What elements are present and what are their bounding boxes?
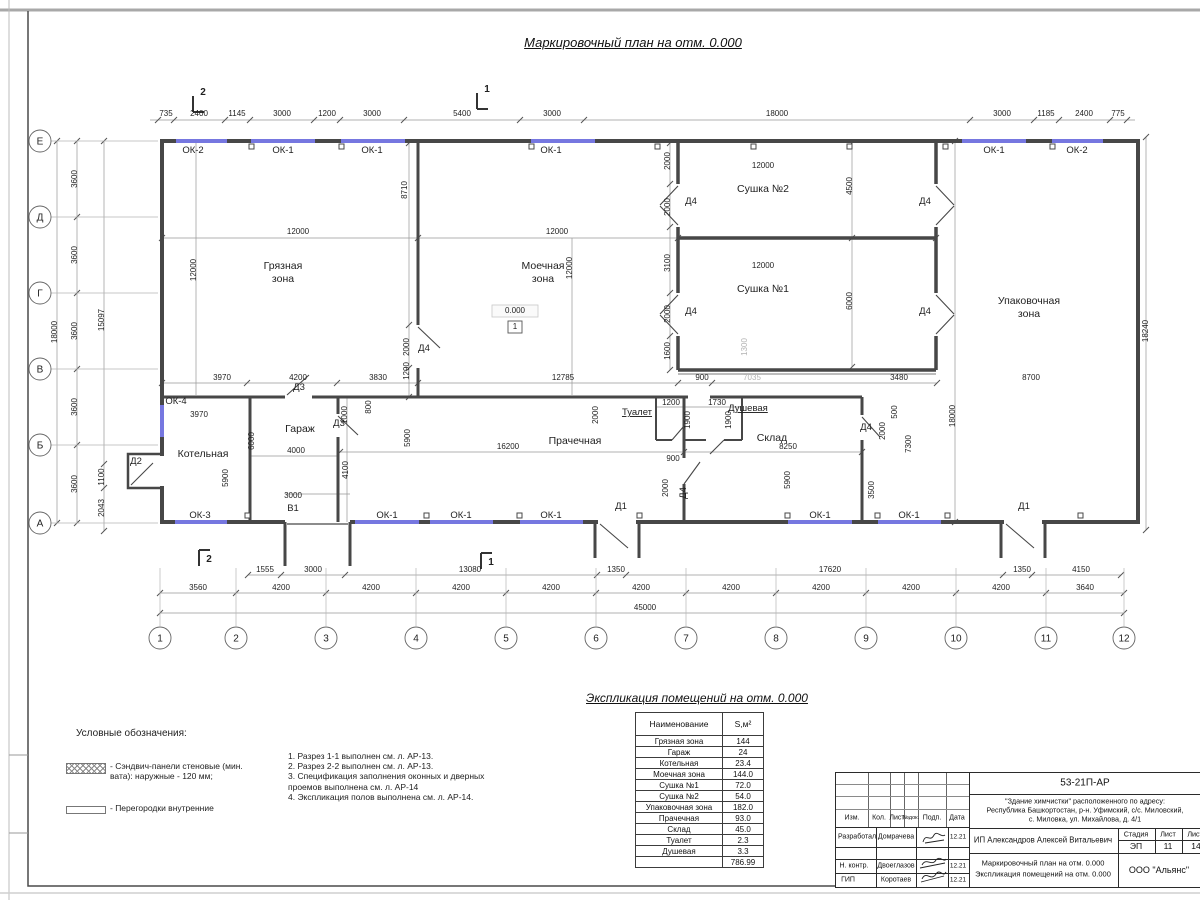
opening-tag: Д4 — [418, 343, 430, 354]
row-name: Коротаев — [881, 877, 911, 884]
schedule-row: Склад45.0 — [636, 824, 764, 835]
company-name: ООО "Альянс" — [1129, 865, 1189, 875]
dim-label: 16200 — [497, 442, 520, 451]
dim-label: 3970 — [190, 410, 208, 419]
empty-cell — [636, 857, 723, 868]
opening-tag: ОК-1 — [272, 145, 293, 156]
dim-label: 2000 — [663, 305, 672, 323]
opening-tag: Д2 — [130, 456, 142, 467]
room-area-cell: 24 — [723, 747, 764, 758]
opening-tag: ОК-1 — [376, 510, 397, 521]
drawing-title: Маркировочный план на отм. 0.000 — [433, 35, 833, 50]
opening-tag: ОК-1 — [540, 145, 561, 156]
dim-label: 18000 — [50, 320, 59, 343]
dim-label: 2000 — [878, 422, 887, 440]
schedule-row: Моечная зона144.0 — [636, 769, 764, 780]
sheets-label: Листов — [1187, 830, 1200, 839]
opening-tag: Д4 — [919, 306, 931, 317]
dim-label: 2000 — [661, 479, 670, 497]
room-name-cell: Склад — [636, 824, 723, 835]
opening-tag: Д4 — [685, 196, 697, 207]
labels-layer: 7352400114530001200300054003000180003000… — [50, 84, 1150, 612]
room-name-cell: Моечная зона — [636, 769, 723, 780]
row-name: Двоеглазов — [877, 863, 914, 870]
axis-letter: В — [37, 365, 44, 376]
axis-number: 4 — [413, 634, 419, 645]
axis-letter: А — [37, 519, 44, 530]
dim-label: 2400 — [1075, 109, 1093, 118]
walls — [128, 141, 1140, 566]
legend-item-label: - Сэндвич-панели стеновые (мин. вата): н… — [110, 761, 262, 781]
opening-tag: ОК-1 — [450, 510, 471, 521]
room-label: Сушка №2 — [737, 183, 789, 195]
schedule-row: Душевая3.3 — [636, 846, 764, 857]
dim-label: 3600 — [70, 475, 79, 493]
axis-number: 1 — [157, 634, 163, 645]
room-label: Сушка №1 — [737, 283, 789, 295]
opening-tag: Душевая — [728, 403, 768, 414]
dim-label: 3000 — [284, 491, 302, 500]
schedule-row: Гараж24 — [636, 747, 764, 758]
dim-label: 1900 — [683, 411, 692, 429]
opening-tag: ОК-2 — [1066, 145, 1087, 156]
dim-label: 5900 — [221, 469, 230, 487]
dim-label: 1200 — [662, 398, 680, 407]
dim-label: 18000 — [766, 109, 789, 118]
col-data: Дата — [949, 815, 965, 822]
dim-label: 3000 — [543, 109, 561, 118]
dim-label: 900 — [695, 373, 709, 382]
axis-letter: Б — [37, 441, 44, 452]
dimension-ticks — [54, 117, 1149, 616]
stage-label: Стадия — [1124, 830, 1149, 839]
room-name-cell: Туалет — [636, 835, 723, 846]
schedule-row: Упаковочная зона182.0 — [636, 802, 764, 813]
sheet-value: 11 — [1164, 841, 1173, 851]
room-area-cell: 72.0 — [723, 780, 764, 791]
dim-label: 2000 — [663, 198, 672, 216]
sheets-value: 14 — [1191, 841, 1200, 851]
dim-label: 17620 — [819, 565, 842, 574]
col-izm: Изм. — [845, 815, 860, 822]
doc-title-line: Маркировочный план на отм. 0.000 — [982, 859, 1105, 868]
dim-label: 12000 — [189, 258, 198, 281]
dim-label: 5900 — [783, 471, 792, 489]
room-area-cell: 45.0 — [723, 824, 764, 835]
row-role: Н. контр. — [840, 863, 869, 870]
dim-label: 12000 — [752, 261, 775, 270]
axis-number: 12 — [1118, 634, 1130, 645]
dimension-lines — [57, 120, 1146, 613]
legend-item-label: - Перегородки внутренние — [110, 803, 262, 813]
opening-tag: ОК-1 — [540, 510, 561, 521]
stage-value: ЭП — [1130, 841, 1142, 851]
sheet-label: Лист — [1160, 830, 1176, 839]
room-label: Прачечная — [549, 435, 602, 447]
dim-label: 3480 — [890, 373, 908, 382]
dim-label: 735 — [159, 109, 173, 118]
section-mark-label: 1 — [488, 557, 494, 568]
partition-swatch-icon — [66, 806, 106, 814]
dim-label: 3640 — [1076, 583, 1094, 592]
room-label: зона — [1018, 308, 1040, 320]
opening-tag: В1 — [287, 503, 299, 514]
section-mark-label: 2 — [206, 554, 212, 565]
room-name-cell: Сушка №2 — [636, 791, 723, 802]
dim-label: 12785 — [552, 373, 575, 382]
room-name-cell: Сушка №1 — [636, 780, 723, 791]
axis-number: 5 — [503, 634, 509, 645]
dim-label: 1730 — [708, 398, 726, 407]
axis-letter: Е — [37, 137, 44, 148]
dim-label: 13080 — [459, 565, 482, 574]
opening-tag: Д4 — [685, 306, 697, 317]
col-podp: Подп. — [923, 815, 942, 822]
hatch-swatch-icon — [66, 763, 106, 774]
axis-number: 7 — [683, 634, 689, 645]
room-name-cell: Душевая — [636, 846, 723, 857]
schedule-row: Сушка №254.0 — [636, 791, 764, 802]
room-schedule: Наименование S,м² Грязная зона144Гараж24… — [635, 712, 764, 868]
dim-label: 1100 — [97, 468, 106, 486]
dim-label: 7300 — [904, 435, 913, 453]
schedule-row: Сушка №172.0 — [636, 780, 764, 791]
dim-label: 1290 — [402, 362, 411, 380]
dim-label: 4200 — [272, 583, 290, 592]
dim-label: 12000 — [287, 227, 310, 236]
schedule-total-row: 786.99 — [636, 857, 764, 868]
title-block: 53-21П-АР "Здание химчистки" расположенн… — [835, 772, 1200, 888]
dim-label: 3560 — [189, 583, 207, 592]
dim-label: 900 — [666, 454, 680, 463]
legend: Условные обозначения: - Сэндвич-панели с… — [66, 728, 276, 843]
room-name-cell: Упаковочная зона — [636, 802, 723, 813]
dim-label: 6000 — [845, 292, 854, 310]
section-mark-label: 1 — [484, 84, 490, 95]
dim-label: 4200 — [289, 373, 307, 382]
room-name-cell: Котельная — [636, 758, 723, 769]
dim-label: 2400 — [190, 109, 208, 118]
dim-label: 1 — [513, 322, 518, 331]
dim-label: 3970 — [213, 373, 231, 382]
signature — [918, 855, 948, 885]
axis-number: 8 — [773, 634, 779, 645]
schedule-title: Экспликация помещений на отм. 0.000 — [557, 691, 837, 705]
dim-label: 4200 — [362, 583, 380, 592]
room-name-cell: Грязная зона — [636, 736, 723, 747]
col-kol: Кол. — [872, 815, 886, 822]
row-name: Домрачева — [878, 834, 914, 841]
dim-label: 3000 — [304, 565, 322, 574]
project-address-line: Республика Башкортостан, р-н. Уфимский, … — [987, 806, 1184, 815]
opening-tag: ОК-3 — [189, 510, 210, 521]
section-marks — [193, 93, 492, 569]
room-area-cell: 93.0 — [723, 813, 764, 824]
dim-label: 45000 — [634, 603, 657, 612]
room-label: Гараж — [285, 423, 315, 435]
dim-label: 3000 — [273, 109, 291, 118]
dim-label: 1000 — [340, 406, 349, 424]
dim-label: 4200 — [812, 583, 830, 592]
room-label: Моечная — [522, 260, 565, 272]
dim-label: 15097 — [97, 308, 106, 331]
note-item: 2. Разрез 2-2 выполнен см. л. АР-13. — [288, 761, 488, 771]
dim-label: 5400 — [453, 109, 471, 118]
dim-label: 8250 — [779, 442, 797, 451]
schedule-header-name: Наименование — [636, 713, 723, 736]
room-name-cell: Гараж — [636, 747, 723, 758]
axes-layer: ЕДГВБА123456789101112 — [29, 130, 1135, 649]
room-label: Упаковочная — [998, 295, 1060, 307]
dim-label: 12000 — [546, 227, 569, 236]
dim-label: 3000 — [363, 109, 381, 118]
dim-label: 2000 — [663, 152, 672, 170]
room-area-cell: 3.3 — [723, 846, 764, 857]
axis-letter: Г — [37, 289, 43, 300]
axis-number: 6 — [593, 634, 599, 645]
schedule-row: Прачечная93.0 — [636, 813, 764, 824]
schedule-row: Грязная зона144 — [636, 736, 764, 747]
project-address-line: "Здание химчистки" расположенного по адр… — [1005, 797, 1165, 806]
doc-title-line: Экспликация помещений на отм. 0.000 — [975, 870, 1111, 879]
schedule-row: Котельная23.4 — [636, 758, 764, 769]
dim-label: 4500 — [845, 177, 854, 195]
dim-label: 500 — [890, 405, 899, 419]
dim-label: 1145 — [228, 109, 246, 118]
opening-tag: ОК-4 — [165, 396, 186, 407]
opening-tag: ОК-2 — [182, 145, 203, 156]
axis-letter: Д — [37, 213, 44, 224]
dim-label: 12000 — [752, 161, 775, 170]
schedule-body: Грязная зона144Гараж24Котельная23.4Моечн… — [636, 736, 764, 868]
dim-label: 3600 — [70, 170, 79, 188]
drawing-sheet: ЕДГВБА123456789101112 735240011453000120… — [0, 0, 1200, 900]
dim-label: 3600 — [70, 398, 79, 416]
dim-label: 2000 — [402, 338, 411, 356]
dim-label: 3000 — [993, 109, 1011, 118]
opening-tag: Д4 — [860, 422, 872, 433]
dim-label: 4150 — [1072, 565, 1090, 574]
opening-tag: Д1 — [1018, 501, 1030, 512]
room-area-cell: 2.3 — [723, 835, 764, 846]
opening-tag: ОК-1 — [983, 145, 1004, 156]
section-mark-label: 2 — [200, 87, 206, 98]
room-label: зона — [532, 273, 554, 285]
opening-tag: ОК-1 — [361, 145, 382, 156]
room-name-cell: Прачечная — [636, 813, 723, 824]
axis-number: 2 — [233, 634, 239, 645]
dim-label: 1350 — [607, 565, 625, 574]
dim-label: 7035 — [743, 373, 761, 382]
opening-tag: Д3 — [293, 382, 305, 393]
dim-label: 4200 — [992, 583, 1010, 592]
dim-label: 3500 — [867, 481, 876, 499]
dim-label: 4100 — [341, 461, 350, 479]
dim-label: 3600 — [70, 246, 79, 264]
dim-label: 18000 — [948, 404, 957, 427]
room-area-cell: 54.0 — [723, 791, 764, 802]
dim-label: 4200 — [542, 583, 560, 592]
note-item: 3. Спецификация заполнения оконных и две… — [288, 771, 488, 791]
dim-label: 5900 — [403, 429, 412, 447]
project-code: 53-21П-АР — [1060, 778, 1109, 789]
opening-tag: ОК-1 — [898, 510, 919, 521]
dim-label: 4200 — [902, 583, 920, 592]
opening-tag: ОК-1 — [809, 510, 830, 521]
room-area-cell: 144.0 — [723, 769, 764, 780]
schedule-header-area: S,м² — [723, 713, 764, 736]
col-ndok: №док. — [903, 815, 919, 821]
dim-label: 1200 — [318, 109, 336, 118]
schedule-row: Туалет2.3 — [636, 835, 764, 846]
dim-label: 4000 — [287, 446, 305, 455]
axis-number: 9 — [863, 634, 869, 645]
door-leaves — [131, 186, 1034, 548]
opening-tag: Д4 — [678, 487, 689, 499]
dim-label: 4200 — [452, 583, 470, 592]
dim-label: 1555 — [256, 565, 274, 574]
dim-label: 1600 — [663, 342, 672, 360]
axis-number: 3 — [323, 634, 329, 645]
total-area-cell: 786.99 — [723, 857, 764, 868]
note-item: 4. Экспликация полов выполнена см. л. АР… — [288, 792, 488, 802]
dim-label: 4200 — [722, 583, 740, 592]
dim-label: 0.000 — [505, 306, 526, 315]
room-label: зона — [272, 273, 294, 285]
dim-label: 4200 — [632, 583, 650, 592]
notes-list: 1. Разрез 1-1 выполнен см. л. АР-13.2. Р… — [288, 751, 488, 802]
legend-heading: Условные обозначения: — [76, 728, 276, 739]
opening-tag: Д4 — [919, 196, 931, 207]
dim-label: 800 — [364, 400, 373, 414]
signature — [920, 829, 948, 846]
room-area-cell: 23.4 — [723, 758, 764, 769]
row-date: 12.21 — [950, 834, 966, 841]
dim-label: 2000 — [591, 406, 600, 424]
room-area-cell: 182.0 — [723, 802, 764, 813]
legend-item-partitions: - Перегородки внутренние — [66, 803, 276, 821]
client-name: ИП Александров Алексей Витальевич — [974, 836, 1112, 845]
dim-label: 2043 — [97, 499, 106, 517]
dim-label: 1350 — [1013, 565, 1031, 574]
dim-label: 12000 — [565, 256, 574, 279]
row-role: ГИП — [841, 877, 855, 884]
dim-label: 1300 — [740, 338, 749, 356]
room-label: Котельная — [178, 448, 229, 460]
room-area-cell: 144 — [723, 736, 764, 747]
dim-label: 18240 — [1141, 319, 1150, 342]
dim-label: 3830 — [369, 373, 387, 382]
dim-label: 1185 — [1037, 109, 1055, 118]
row-role: Разработал — [838, 834, 876, 841]
dim-label: 3100 — [663, 254, 672, 272]
dim-label: 3600 — [70, 322, 79, 340]
opening-tag: Туалет — [622, 407, 653, 418]
row-date: 12.21 — [950, 863, 966, 870]
opening-tag: Д1 — [615, 501, 627, 512]
project-address-line: с. Миловка, ул. Михайлова, д. 4/1 — [1029, 815, 1141, 824]
dim-label: 775 — [1111, 109, 1125, 118]
dim-label: 6000 — [247, 432, 256, 450]
window-strips — [162, 141, 1103, 522]
dim-label: 8700 — [1022, 373, 1040, 382]
legend-item-sandwich-panels: - Сэндвич-панели стеновые (мин. вата): н… — [66, 761, 276, 781]
note-item: 1. Разрез 1-1 выполнен см. л. АР-13. — [288, 751, 488, 761]
axis-number: 11 — [1041, 634, 1052, 645]
axis-number: 10 — [950, 634, 962, 645]
row-date: 12.21 — [950, 877, 966, 884]
dim-label: 8710 — [400, 181, 409, 199]
room-label: Грязная — [264, 260, 303, 272]
dim-label: 1900 — [724, 411, 733, 429]
